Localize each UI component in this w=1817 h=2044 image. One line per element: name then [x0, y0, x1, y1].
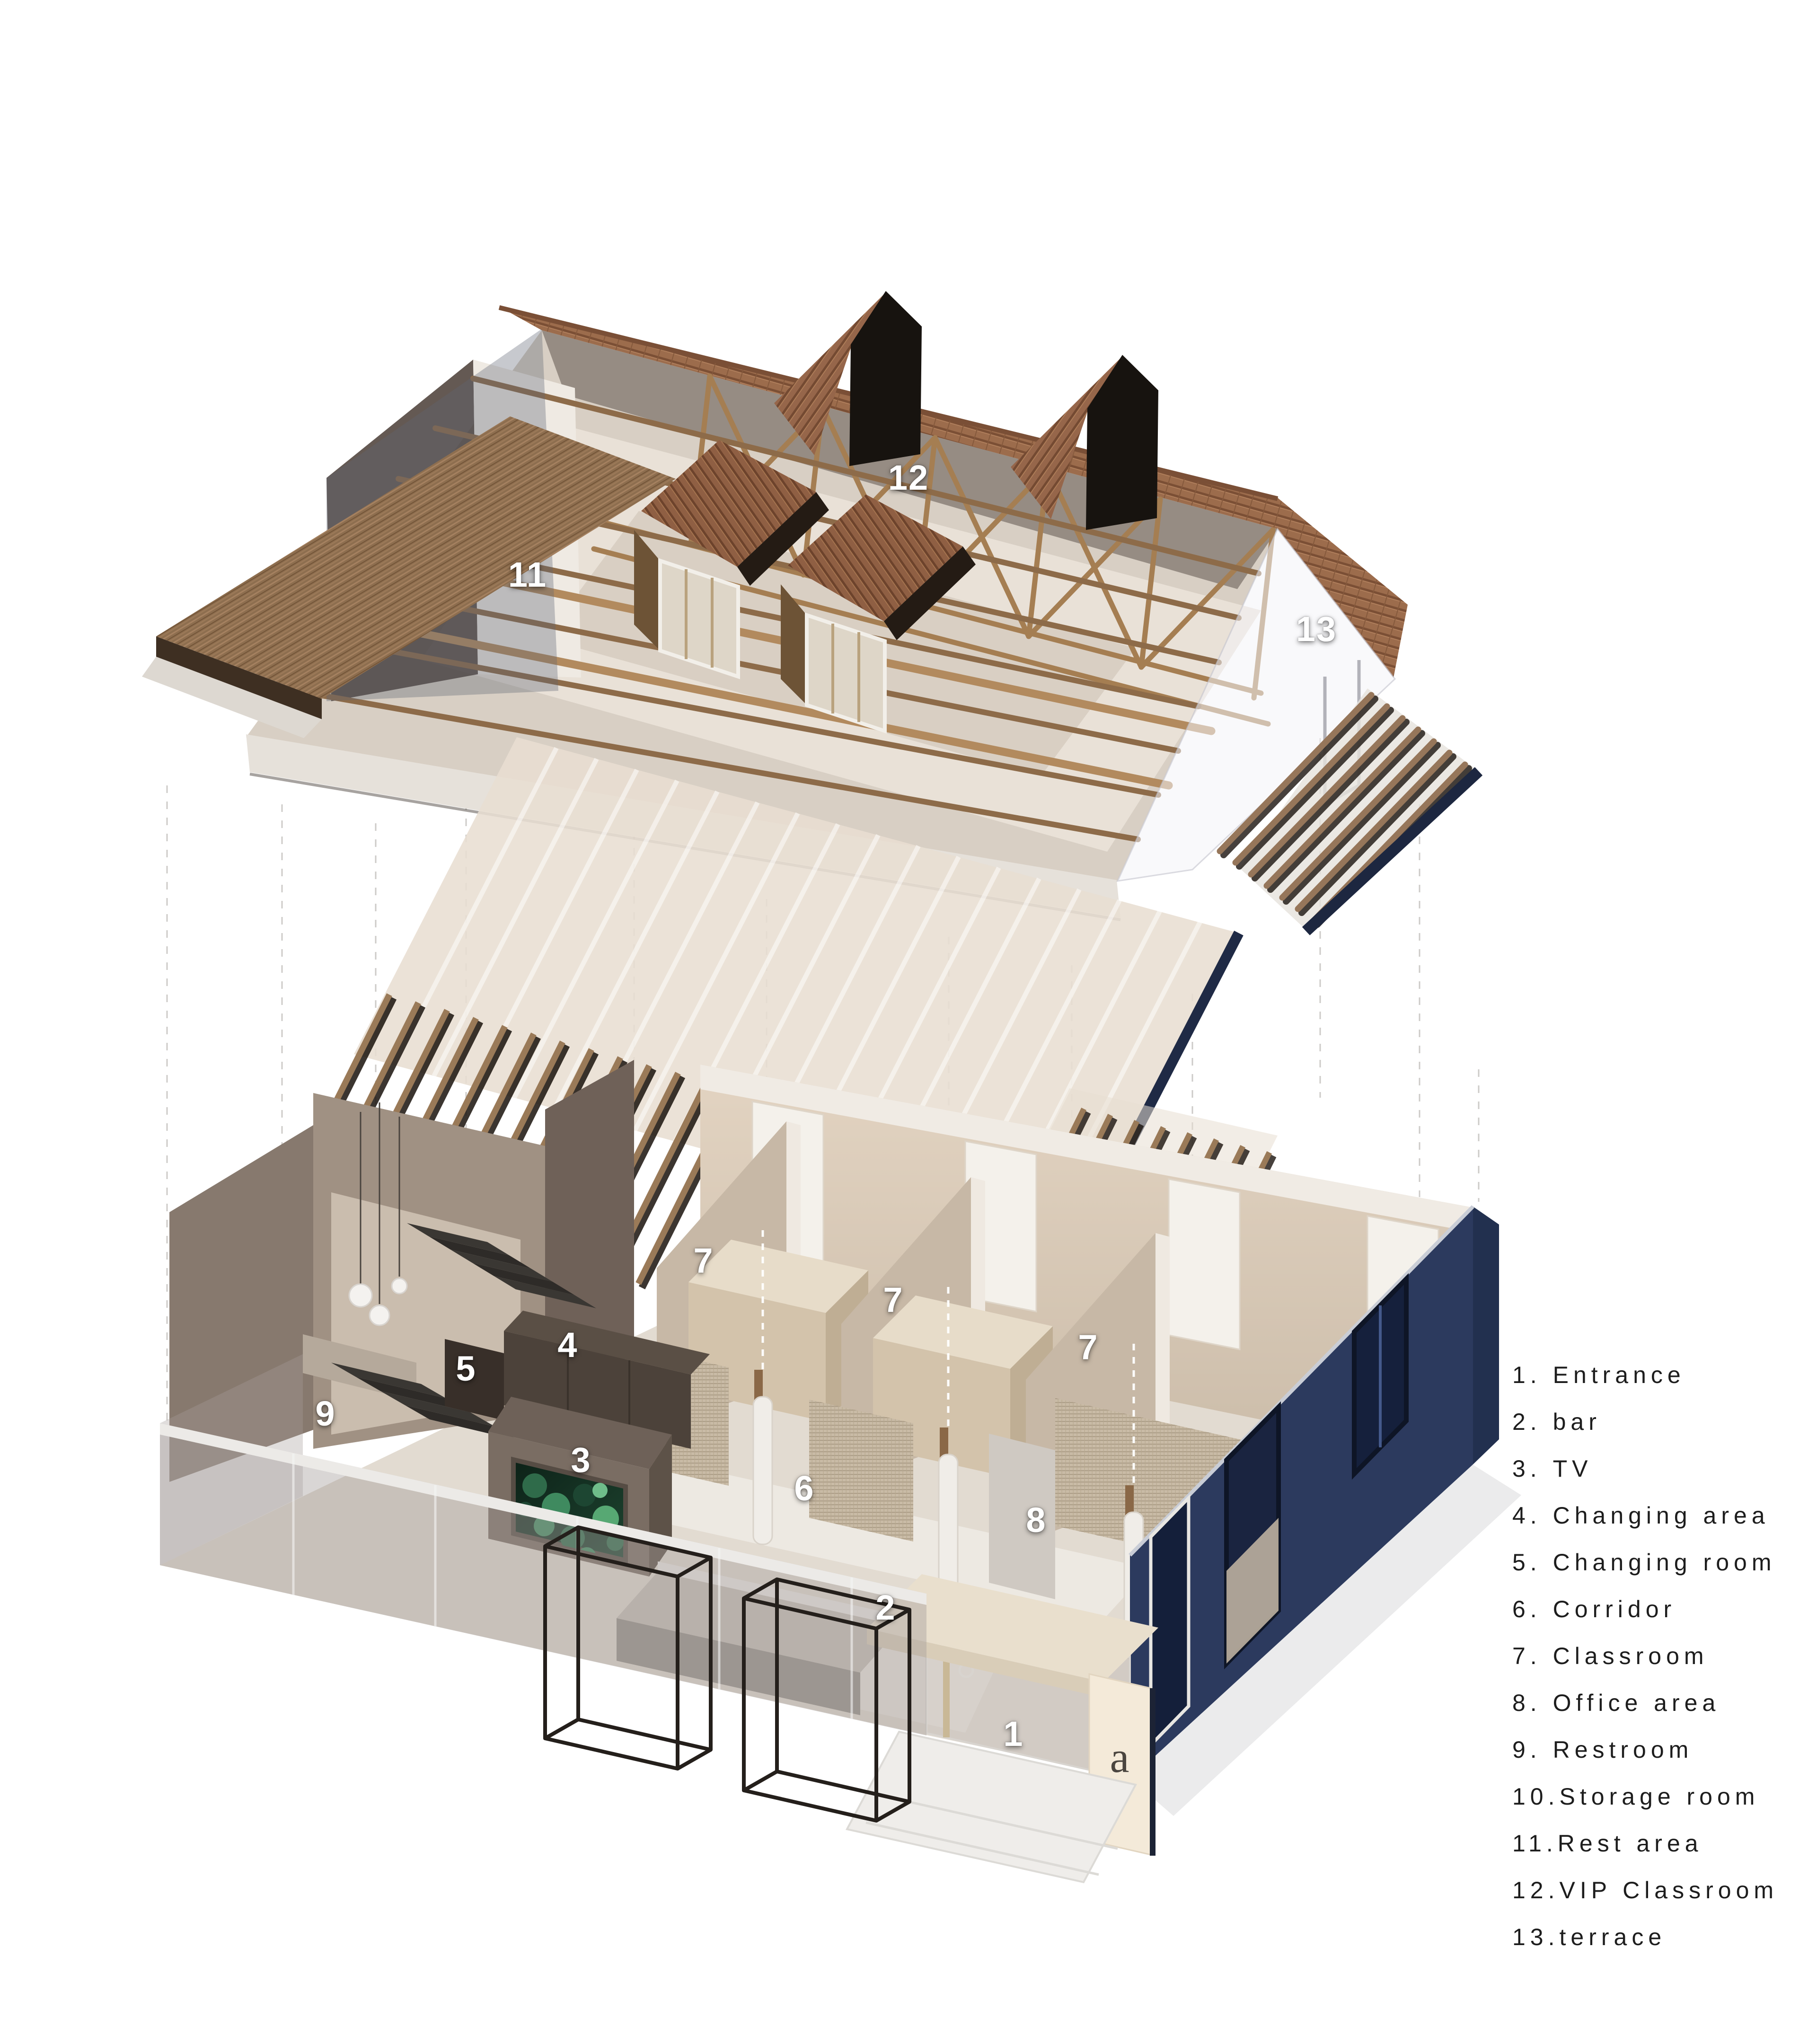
mesh-panel — [809, 1400, 913, 1542]
legend-item-number: 1. — [1512, 1361, 1553, 1389]
callout-number: 1 — [1003, 1717, 1023, 1752]
callout-number: 8 — [1026, 1503, 1046, 1538]
legend-item-number: 11. — [1512, 1830, 1558, 1857]
legend-item-number: 5. — [1512, 1549, 1553, 1576]
callout-number: 5 — [456, 1351, 476, 1386]
callout-number: 12 — [888, 460, 929, 495]
legend-item-label: Entrance — [1553, 1361, 1685, 1389]
legend-item: 12.VIP Classroom — [1512, 1867, 1815, 1913]
legend-item: 11.Rest area — [1512, 1820, 1815, 1867]
callout-number: 4 — [557, 1328, 578, 1363]
legend-item-label: Rest area — [1558, 1830, 1703, 1857]
door — [1169, 1179, 1240, 1349]
legend-item-label: Changing area — [1553, 1502, 1770, 1529]
legend-item: 8. Office area — [1512, 1679, 1815, 1726]
callout-number: 13 — [1296, 612, 1337, 647]
legend-item: 7. Classroom — [1512, 1632, 1815, 1679]
legend-item: 1. Entrance — [1512, 1351, 1815, 1398]
legend-item: 2. bar — [1512, 1398, 1815, 1445]
legend-item-label: Restroom — [1553, 1736, 1694, 1763]
callout-number: 6 — [794, 1471, 814, 1506]
callout-number: 7 — [1078, 1330, 1098, 1365]
legend-item-number: 2. — [1512, 1408, 1553, 1436]
callout-number: 9 — [315, 1396, 335, 1431]
callout-number: 3 — [571, 1443, 591, 1478]
legend-item: 10.Storage room — [1512, 1773, 1815, 1820]
legend-item-label: Corridor — [1553, 1595, 1676, 1623]
callout-number: 7 — [883, 1283, 903, 1318]
legend-item-number: 8. — [1512, 1689, 1553, 1717]
legend-item-label: VIP Classroom — [1560, 1877, 1779, 1904]
floor-layer: a — [160, 1060, 1521, 1882]
legend-item-label: bar — [1553, 1408, 1601, 1436]
legend: 1. Entrance2. bar3. TV4. Changing area5.… — [1512, 1351, 1815, 1960]
legend-item: 3. TV — [1512, 1445, 1815, 1492]
callout-number: 7 — [693, 1243, 714, 1278]
legend-item-label: Office area — [1553, 1689, 1720, 1717]
legend-item-label: Changing room — [1553, 1549, 1776, 1576]
callout-number: 11 — [508, 557, 547, 592]
legend-item-number: 10. — [1512, 1783, 1560, 1810]
legend-item: 5. Changing room — [1512, 1539, 1815, 1586]
legend-item-label: Classroom — [1553, 1642, 1709, 1670]
navy-wall-return — [1473, 1207, 1499, 1464]
legend-item-number: 3. — [1512, 1455, 1553, 1482]
legend-item-label: TV — [1553, 1455, 1593, 1482]
legend-item: 6. Corridor — [1512, 1586, 1815, 1632]
legend-item-number: 7. — [1512, 1642, 1553, 1670]
legend-item-label: terrace — [1560, 1923, 1667, 1951]
sign-letter: a — [1110, 1733, 1129, 1781]
callout-number: 2 — [875, 1590, 896, 1625]
legend-item-number: 9. — [1512, 1736, 1553, 1763]
legend-item: 9. Restroom — [1512, 1726, 1815, 1773]
legend-item-number: 13. — [1512, 1923, 1560, 1951]
legend-item: 4. Changing area — [1512, 1492, 1815, 1539]
legend-item-number: 12. — [1512, 1877, 1560, 1904]
legend-item-number: 4. — [1512, 1502, 1553, 1529]
legend-item-label: Storage room — [1560, 1783, 1760, 1810]
legend-item-number: 6. — [1512, 1595, 1553, 1623]
window — [1151, 1498, 1189, 1745]
legend-item: 13.terrace — [1512, 1913, 1815, 1960]
